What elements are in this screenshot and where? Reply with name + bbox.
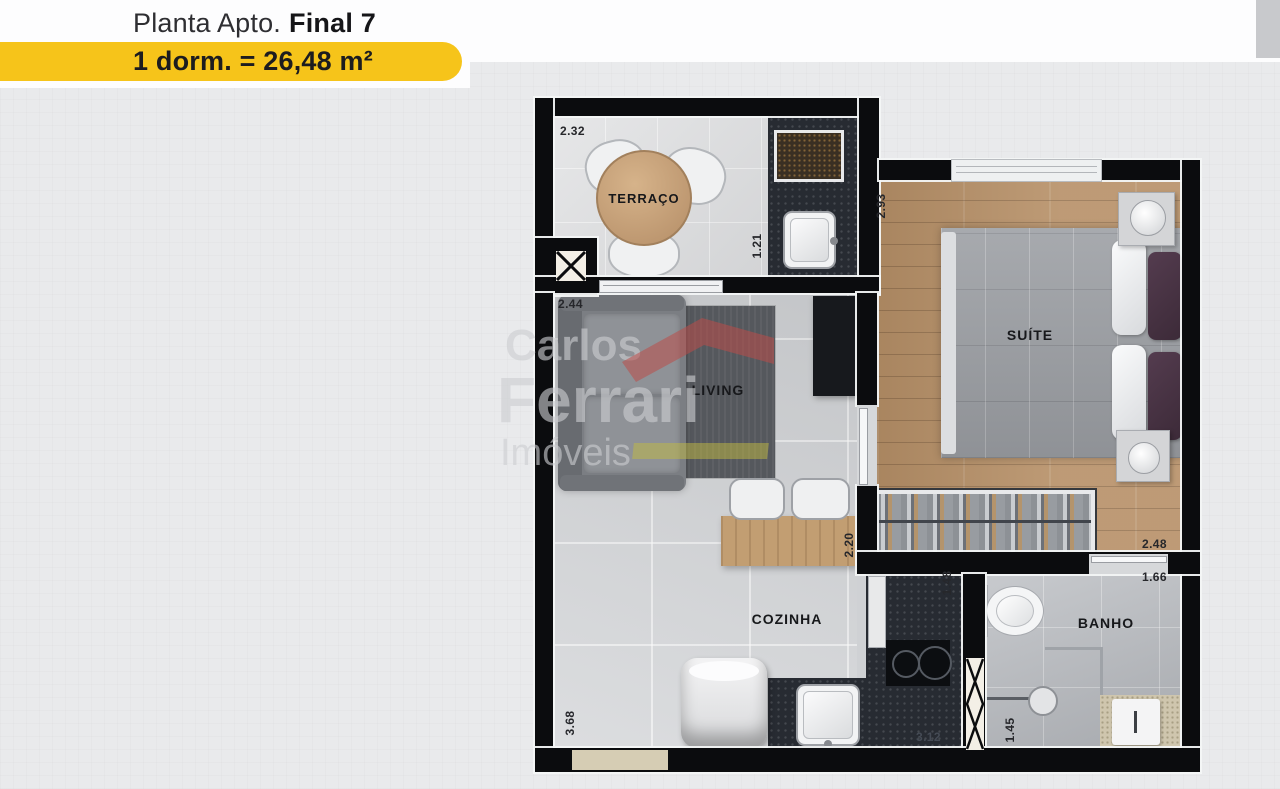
wall bbox=[1182, 160, 1200, 772]
page: TERRAÇO bbox=[0, 0, 1280, 789]
dim-kitchen-counter: 1.48 bbox=[940, 566, 954, 600]
lamp bbox=[1128, 442, 1160, 474]
kitchen-sink bbox=[796, 684, 860, 746]
area-badge-text: 1 dorm. = 26,48 m² bbox=[133, 42, 373, 81]
bathroom-label: BANHO bbox=[1064, 615, 1148, 631]
dim-living-width: 2.44 bbox=[558, 297, 583, 311]
stool bbox=[729, 478, 785, 520]
accent-pillow bbox=[1148, 252, 1182, 340]
terrace-sliding-door bbox=[599, 280, 723, 293]
shower-arm bbox=[985, 697, 1030, 700]
wardrobe-rack bbox=[871, 490, 1095, 560]
towel bbox=[1112, 699, 1160, 745]
sofa-cushion bbox=[584, 314, 680, 394]
kitchen-label: COZINHA bbox=[737, 611, 837, 627]
dim-suite-depth: 2.93 bbox=[874, 189, 888, 223]
cooktop bbox=[886, 640, 950, 686]
terrace-label: TERRAÇO bbox=[608, 191, 679, 206]
area-badge: 1 dorm. = 26,48 m² bbox=[0, 42, 462, 81]
living-label: LIVING bbox=[678, 382, 758, 398]
shower-partition bbox=[1045, 647, 1103, 650]
stool bbox=[791, 478, 850, 520]
dim-counter-length: 2.20 bbox=[842, 528, 856, 562]
bathroom-door-leaf bbox=[1091, 556, 1167, 563]
corner-block bbox=[1256, 0, 1280, 58]
dim-banho-width: 1.66 bbox=[1142, 570, 1167, 584]
pillow bbox=[1112, 345, 1146, 440]
page-title: Planta Apto.Final 7 bbox=[133, 5, 376, 41]
suite-door-leaf bbox=[859, 408, 868, 485]
wall bbox=[535, 98, 879, 116]
sofa-backrest bbox=[558, 295, 582, 491]
terrace-table: TERRAÇO bbox=[596, 150, 692, 246]
dim-terraco-width: 2.32 bbox=[560, 124, 585, 138]
pillow bbox=[1112, 240, 1146, 335]
title-bold: Final 7 bbox=[289, 8, 376, 38]
bed-foot-blanket bbox=[941, 232, 956, 454]
title-regular: Planta Apto. bbox=[133, 8, 281, 38]
dim-terraco-counter: 1.21 bbox=[750, 229, 764, 263]
breakfast-counter bbox=[721, 516, 856, 566]
wall bbox=[535, 293, 553, 772]
wall bbox=[857, 293, 877, 405]
lamp bbox=[1130, 200, 1166, 236]
suite-label: SUÍTE bbox=[988, 327, 1072, 343]
dim-suite-width: 2.48 bbox=[1142, 537, 1167, 551]
toilet bbox=[986, 586, 1044, 636]
sofa-armrest bbox=[560, 475, 684, 491]
shower-head-icon bbox=[1028, 686, 1058, 716]
entry-mat bbox=[572, 750, 668, 770]
barbecue-grill bbox=[774, 130, 844, 182]
suite-window bbox=[951, 159, 1102, 182]
accent-pillow bbox=[1148, 352, 1182, 440]
sofa-cushion bbox=[584, 397, 680, 473]
refrigerator bbox=[868, 576, 886, 648]
dim-banho-depth: 1.45 bbox=[1003, 713, 1017, 747]
shaft-icon bbox=[556, 251, 586, 281]
shower-partition bbox=[1100, 647, 1103, 695]
tv-panel bbox=[813, 296, 857, 396]
dim-kitchen-width: 3.12 bbox=[916, 730, 941, 744]
shaft-icon bbox=[966, 658, 984, 750]
dim-kitchen-length: 3.68 bbox=[563, 706, 577, 740]
terrace-sink bbox=[783, 211, 836, 269]
washing-machine bbox=[681, 658, 767, 748]
